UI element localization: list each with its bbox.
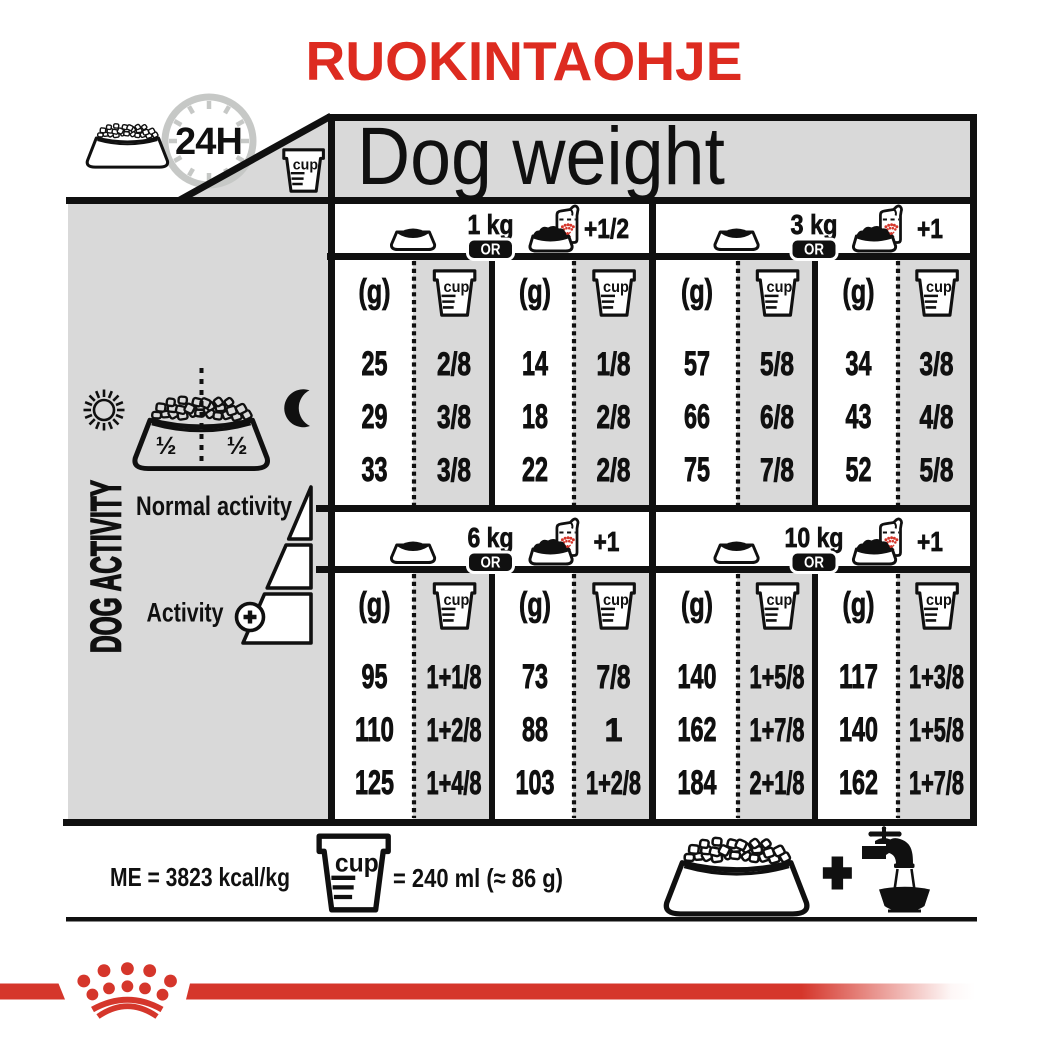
svg-text:Dog weight: Dog weight: [357, 111, 725, 202]
svg-text:3/8: 3/8: [437, 452, 471, 488]
svg-text:OR: OR: [804, 242, 824, 259]
svg-text:1+7/8: 1+7/8: [750, 712, 805, 748]
svg-text:2+1/8: 2+1/8: [750, 765, 805, 801]
svg-text:OR: OR: [481, 555, 501, 572]
svg-text:2/8: 2/8: [437, 346, 471, 382]
svg-text:34: 34: [846, 345, 872, 383]
svg-text:140: 140: [678, 658, 717, 696]
svg-text:DOG ACTIVITY: DOG ACTIVITY: [83, 480, 131, 653]
svg-text:125: 125: [355, 764, 394, 802]
svg-text:88: 88: [522, 711, 548, 749]
svg-text:Normal activity: Normal activity: [136, 491, 292, 521]
svg-text:(g): (g): [359, 273, 391, 311]
svg-text:29: 29: [362, 398, 388, 436]
svg-text:75: 75: [684, 451, 710, 489]
svg-text:½: ½: [156, 432, 177, 460]
svg-text:½: ½: [227, 432, 248, 460]
svg-text:1+3/8: 1+3/8: [909, 659, 964, 695]
svg-text:1+2/8: 1+2/8: [586, 765, 641, 801]
svg-text:1+2/8: 1+2/8: [427, 712, 482, 748]
svg-text:66: 66: [684, 398, 710, 436]
svg-text:= 240 ml (≈ 86 g): = 240 ml (≈ 86 g): [393, 863, 563, 893]
svg-text:+1: +1: [594, 526, 620, 557]
svg-text:73: 73: [522, 658, 548, 696]
svg-text:+1: +1: [917, 213, 943, 244]
svg-text:RUOKINTAOHJE: RUOKINTAOHJE: [306, 30, 743, 92]
svg-text:18: 18: [522, 398, 548, 436]
svg-text:(g): (g): [681, 273, 713, 311]
svg-text:1+7/8: 1+7/8: [909, 765, 964, 801]
svg-text:162: 162: [678, 711, 717, 749]
svg-text:1+5/8: 1+5/8: [750, 659, 805, 695]
svg-text:25: 25: [362, 345, 388, 383]
svg-text:2/8: 2/8: [597, 452, 631, 488]
svg-text:184: 184: [678, 764, 717, 802]
svg-text:33: 33: [362, 451, 388, 489]
svg-text:+1: +1: [917, 526, 943, 557]
svg-text:5/8: 5/8: [920, 452, 954, 488]
svg-text:+1/2: +1/2: [584, 213, 629, 244]
svg-text:7/8: 7/8: [760, 452, 794, 488]
svg-text:1+1/8: 1+1/8: [427, 659, 482, 695]
svg-text:10 kg: 10 kg: [785, 522, 844, 553]
svg-text:(g): (g): [359, 586, 391, 624]
svg-text:103: 103: [516, 764, 555, 802]
svg-text:140: 140: [839, 711, 878, 749]
svg-text:1+4/8: 1+4/8: [427, 765, 482, 801]
svg-text:57: 57: [684, 345, 710, 383]
svg-text:95: 95: [362, 658, 388, 696]
svg-text:OR: OR: [481, 242, 501, 259]
svg-text:7/8: 7/8: [597, 659, 631, 695]
svg-text:1 kg: 1 kg: [468, 209, 514, 240]
svg-text:2/8: 2/8: [597, 399, 631, 435]
svg-text:1+5/8: 1+5/8: [909, 712, 964, 748]
svg-text:ME = 3823 kcal/kg: ME = 3823 kcal/kg: [110, 862, 290, 892]
svg-text:3 kg: 3 kg: [791, 209, 838, 240]
svg-text:5/8: 5/8: [760, 346, 794, 382]
svg-text:(g): (g): [681, 586, 713, 624]
svg-text:(g): (g): [519, 586, 551, 624]
svg-text:(g): (g): [843, 273, 875, 311]
svg-text:3/8: 3/8: [920, 346, 954, 382]
svg-text:1/8: 1/8: [597, 346, 631, 382]
svg-text:117: 117: [839, 658, 878, 696]
svg-text:Activity: Activity: [147, 598, 224, 628]
svg-text:22: 22: [522, 451, 548, 489]
svg-text:24H: 24H: [175, 121, 243, 163]
svg-text:162: 162: [839, 764, 878, 802]
svg-text:110: 110: [355, 711, 394, 749]
svg-text:3/8: 3/8: [437, 399, 471, 435]
svg-text:(g): (g): [843, 586, 875, 624]
svg-text:6 kg: 6 kg: [468, 522, 514, 553]
svg-text:52: 52: [846, 451, 872, 489]
svg-text:43: 43: [846, 398, 872, 436]
svg-text:OR: OR: [804, 555, 824, 572]
svg-text:6/8: 6/8: [760, 399, 794, 435]
svg-text:1: 1: [605, 712, 623, 748]
svg-text:14: 14: [522, 345, 548, 383]
svg-text:4/8: 4/8: [920, 399, 954, 435]
svg-text:(g): (g): [519, 273, 551, 311]
